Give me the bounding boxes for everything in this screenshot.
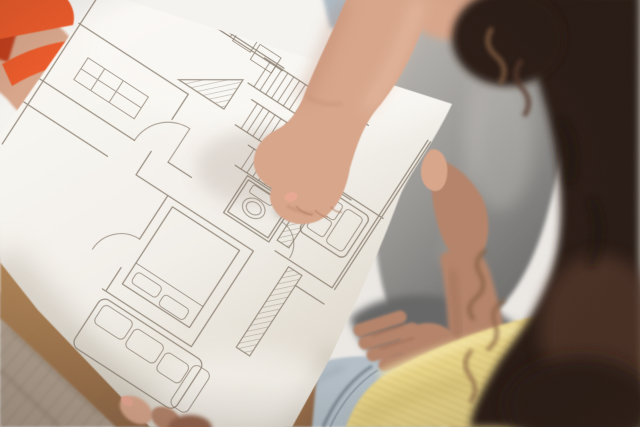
scene-svg — [0, 0, 640, 427]
film-grain — [0, 0, 640, 427]
photo-scene — [0, 0, 640, 427]
